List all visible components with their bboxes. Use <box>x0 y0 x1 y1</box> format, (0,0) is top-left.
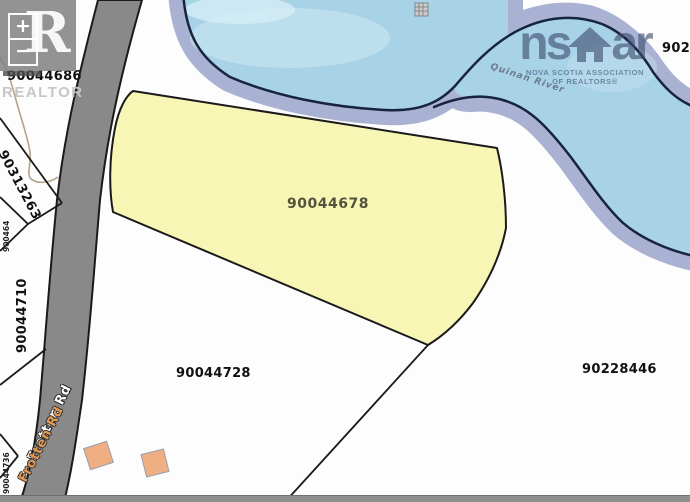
nsar-logo-ar: ar <box>611 22 650 66</box>
nsar-subtitle: NOVA SCOTIA ASSOCIATION OF REALTORS® <box>505 68 665 86</box>
parcel-label-west-edge: 900464 <box>2 221 11 252</box>
realtor-watermark-text: REALTOR <box>2 84 82 101</box>
zoom-out-button[interactable]: − <box>8 40 38 66</box>
zoom-control: + − <box>8 13 38 66</box>
nsar-subtitle-line2: OF REALTORS® <box>505 77 665 86</box>
parcel-label-south: 90044728 <box>176 366 251 381</box>
nsar-watermark: ns ar NOVA SCOTIA ASSOCIATION OF REALTOR… <box>505 22 665 86</box>
parcel-label-northeast: 902 <box>662 41 690 56</box>
nsar-subtitle-line1: NOVA SCOTIA ASSOCIATION <box>505 68 665 77</box>
house-icon <box>568 26 612 62</box>
parcel-label-highlighted: 90044678 <box>287 196 369 212</box>
nsar-logo-ns: ns <box>519 22 569 66</box>
bottom-bar <box>0 495 690 502</box>
map-symbol-icon <box>415 3 428 16</box>
zoom-in-button[interactable]: + <box>8 13 38 40</box>
nsar-logo: ns ar <box>505 22 665 66</box>
boundary-line <box>0 349 46 385</box>
parcel-label-west: 90044710 <box>15 278 30 353</box>
realtor-watermark-edge <box>3 71 41 76</box>
parcel-highlight-shape[interactable] <box>110 91 506 345</box>
map-canvas[interactable]: 90044678 90044728 90228446 90044686 902 … <box>0 0 690 502</box>
boundary-line <box>285 345 428 502</box>
parcel-label-southeast: 90228446 <box>582 362 657 377</box>
parcel-label-southwest-edge: 90044736 <box>2 452 11 494</box>
